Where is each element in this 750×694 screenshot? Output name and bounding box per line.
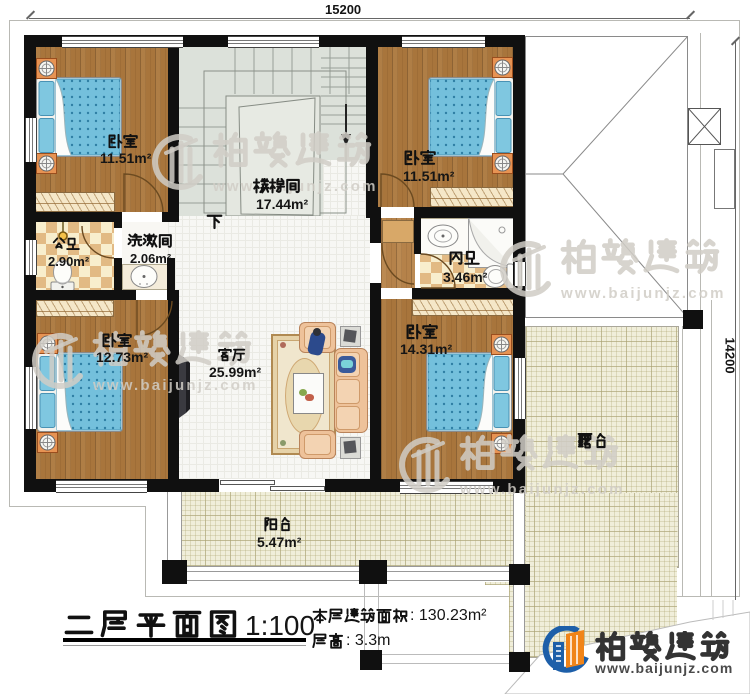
svg-text:www.baijunjz.com: www.baijunjz.com xyxy=(560,285,726,302)
svg-text:www.baijunjz.com: www.baijunjz.com xyxy=(459,481,625,498)
